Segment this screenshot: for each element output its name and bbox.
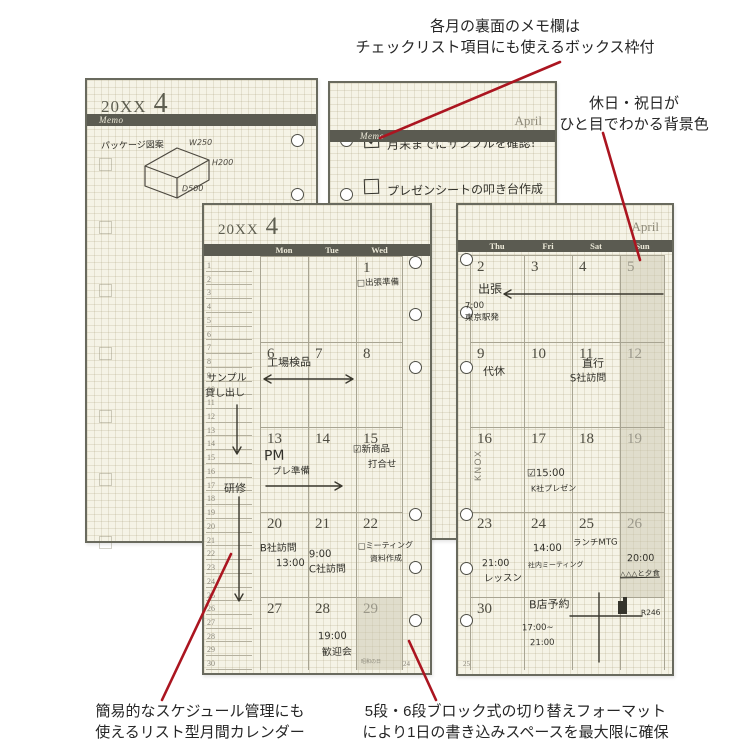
calendar-cell: 1 <box>356 256 403 342</box>
annotation-memo-feature: 各月の裏面のメモ欄は チェックリスト項目にも使えるボックス枠付 <box>305 16 705 58</box>
binder-hole <box>409 256 422 269</box>
checklist-text: プレゼンシートの叩き台作成 <box>387 180 543 199</box>
calendar-cell: 16 <box>470 427 524 512</box>
day-label: Thu <box>470 240 524 252</box>
note-b-from: 17:00~ <box>522 624 554 633</box>
month-label: April <box>632 219 659 235</box>
list-number: 23 <box>207 563 215 572</box>
note-daikyu: 代休 <box>483 366 505 377</box>
memo-checkbox-square <box>99 347 112 360</box>
note-welcome: 歓迎会 <box>322 648 352 659</box>
note-sample: サンプル <box>207 374 247 385</box>
list-row: 19 <box>206 505 252 519</box>
list-number: 26 <box>207 604 215 613</box>
annotation-block-feature: 5段・6段ブロック式の切り替えフォーマット により1日の書き込みスペースを最大限… <box>343 701 688 743</box>
list-number: 27 <box>207 618 215 627</box>
calendar-cell: 14 <box>308 427 356 512</box>
list-number: 16 <box>207 467 215 476</box>
list-row: 21 <box>206 533 252 547</box>
note-b-reserve: B店予約 <box>529 599 570 611</box>
memo-section-label: Memo <box>99 115 124 125</box>
list-row: 24 <box>206 574 252 588</box>
note-c-time: 9:00 <box>309 550 332 560</box>
binder-hole <box>291 188 304 201</box>
calendar-cell: 27 <box>260 597 308 670</box>
list-row: 26 <box>206 601 252 615</box>
list-row: 8 <box>206 354 252 368</box>
list-number: 28 <box>207 632 215 641</box>
list-number: 7 <box>207 343 211 352</box>
page-number: 24 <box>403 661 410 668</box>
binder-hole <box>460 562 473 575</box>
list-row: 20 <box>206 519 252 533</box>
note-meeting: 社内ミーティング <box>528 561 584 569</box>
calendar-cell: 2 <box>470 255 524 342</box>
list-row: 25 <box>206 588 252 602</box>
list-number: 30 <box>207 659 215 668</box>
dim-width: W250 <box>189 139 212 147</box>
date-number: 14 <box>315 431 330 448</box>
dim-depth: D500 <box>182 185 204 193</box>
date-number: 2 <box>477 259 485 276</box>
calendar-cell: 25 <box>572 512 620 597</box>
calendar-cell: 9 <box>470 342 524 427</box>
calendar-page-right: April KNOX 23459101112161718192324252630… <box>456 203 674 676</box>
date-number: 1 <box>363 260 371 277</box>
memo-checkbox-square <box>99 284 112 297</box>
list-number: 5 <box>207 316 211 325</box>
note-chokko: 直行 <box>582 358 604 369</box>
date-number: 4 <box>579 259 587 276</box>
note-b-visit: B社訪問 <box>260 544 297 555</box>
list-row: 29 <box>206 642 252 656</box>
calendar-cell: 19 <box>620 427 665 512</box>
binder-hole <box>409 508 422 521</box>
calendar-cell: 7 <box>308 342 356 427</box>
list-row: 28 <box>206 629 252 643</box>
calendar-cell: 24 <box>524 512 572 597</box>
memo-checkbox-square <box>99 536 112 549</box>
day-label: Sat <box>572 240 620 252</box>
date-number: 20 <box>267 516 282 533</box>
date-number: 28 <box>315 601 330 618</box>
planner-product-image: 20XX4 Memo パッケージ図案W250H200D500 April Mem… <box>0 0 750 750</box>
note-training: 研修 <box>224 483 246 494</box>
list-row: 13 <box>206 423 252 437</box>
day-label: Wed <box>356 244 403 256</box>
date-number: 25 <box>579 516 594 533</box>
note-c-visit: C社訪問 <box>309 565 346 576</box>
note-lunch-mtg: ランチMTG <box>573 539 618 548</box>
note-dinner: △△△と夕食 <box>620 570 660 578</box>
date-number: 18 <box>579 431 594 448</box>
date-number: 10 <box>531 346 546 363</box>
date-number: 17 <box>531 431 546 448</box>
calendar-cell <box>260 256 308 342</box>
annotation-holiday-feature: 休日・祝日が ひと目でわかる背景色 <box>548 93 720 135</box>
list-row: 16 <box>206 464 252 478</box>
list-row: 22 <box>206 546 252 560</box>
binder-hole <box>460 508 473 521</box>
day-label: Sun <box>620 240 665 252</box>
list-row: 6 <box>206 327 252 341</box>
note-meeting: 資料作成 <box>370 555 402 564</box>
date-number: 30 <box>477 601 492 618</box>
date-number: 9 <box>477 346 485 363</box>
calendar-page-left: 20XX4 1678131415202122272829MonTueWed123… <box>202 203 432 675</box>
note-b-to: 21:00 <box>530 639 555 648</box>
binder-hole <box>409 308 422 321</box>
binder-hole <box>340 188 353 201</box>
date-number: 27 <box>267 601 282 618</box>
list-number: 15 <box>207 453 215 462</box>
date-number: 23 <box>477 516 492 533</box>
list-number: 21 <box>207 536 215 545</box>
list-row: 14 <box>206 436 252 450</box>
note-meeting: □ミーティング <box>358 541 413 550</box>
page-title: 20XX4 <box>218 213 278 241</box>
calendar-cell: 8 <box>356 342 403 427</box>
day-label: Tue <box>308 244 356 256</box>
calendar-cell: 30 <box>470 597 524 670</box>
memo-section-label: Memo <box>360 131 385 141</box>
list-number: 22 <box>207 549 215 558</box>
calendar-cell: 12 <box>620 342 665 427</box>
date-number: 8 <box>363 346 371 363</box>
note-dep-station: 東京駅発 <box>465 314 499 323</box>
note-k-presentation: K社プレゼン <box>531 485 576 494</box>
date-number: 29 <box>363 601 378 618</box>
list-row: 23 <box>206 560 252 574</box>
list-number: 12 <box>207 412 215 421</box>
memo-checkbox-square <box>99 410 112 423</box>
list-number: 17 <box>207 481 215 490</box>
dim-height: H200 <box>212 159 233 167</box>
note-prep: プレ準備 <box>272 467 310 477</box>
binder-hole <box>409 561 422 574</box>
checkbox-empty-icon <box>364 179 380 195</box>
note-b-time: 13:00 <box>276 559 305 570</box>
date-number: 5 <box>627 259 635 276</box>
note-sample: 貸し出し <box>205 389 245 400</box>
note-dinner-time: 20:00 <box>627 554 655 564</box>
memo-checkbox-square <box>99 158 112 171</box>
note-s-visit: S社訪問 <box>570 374 607 385</box>
annotation-list-feature: 簡易的なスケジュール管理にも 使えるリスト型月間カレンダー <box>60 701 340 743</box>
calendar-cell <box>572 597 620 670</box>
binder-hole <box>460 253 473 266</box>
calendar-cell: 18 <box>572 427 620 512</box>
note-dep-time: 7:00 <box>465 302 484 311</box>
note-pm: PM <box>264 449 285 463</box>
list-row: 12 <box>206 409 252 423</box>
note-welcome-time: 19:00 <box>318 632 347 643</box>
note-trip: 出張 <box>478 283 502 296</box>
year-label: 20XX <box>218 222 259 238</box>
note-route-label: R246 <box>641 609 661 617</box>
memo-section-bar: Memo <box>87 114 316 126</box>
date-number: 19 <box>627 431 642 448</box>
memo-section-bar: Memo <box>330 130 555 142</box>
binder-hole <box>409 361 422 374</box>
calendar-cell: 23 <box>470 512 524 597</box>
date-number: 12 <box>627 346 642 363</box>
note-inspection: 工場検品 <box>267 357 311 369</box>
date-number: 16 <box>477 431 492 448</box>
list-number: 19 <box>207 508 215 517</box>
date-number: 3 <box>531 259 539 276</box>
calendar-cell <box>308 256 356 342</box>
list-number: 29 <box>207 645 215 654</box>
date-number: 26 <box>627 516 642 533</box>
binder-hole <box>460 614 473 627</box>
binder-hole <box>409 614 422 627</box>
list-number: 6 <box>207 330 211 339</box>
calendar-cell: 3 <box>524 255 572 342</box>
calendar-cell: 11 <box>572 342 620 427</box>
list-number: 11 <box>207 398 215 407</box>
list-row: 30 <box>206 656 252 670</box>
note-newprod: ☑新商品 <box>353 445 390 455</box>
list-number: 13 <box>207 426 215 435</box>
calendar-cell: 5 <box>620 255 665 342</box>
list-number: 24 <box>207 577 215 586</box>
date-number: 21 <box>315 516 330 533</box>
day-label: Fri <box>524 240 572 252</box>
list-row: 2 <box>206 272 252 286</box>
list-number: 18 <box>207 494 215 503</box>
month-label: April <box>515 113 542 129</box>
list-row: 3 <box>206 285 252 299</box>
note-lesson-time: 21:00 <box>482 559 510 569</box>
note-lesson: レッスン <box>484 574 522 584</box>
list-row: 5 <box>206 313 252 327</box>
list-row: 1 <box>206 258 252 272</box>
date-list: 1234567891011121314151617181920212223242… <box>206 258 256 670</box>
sketch-caption: パッケージ図案 <box>101 141 164 151</box>
list-row: 27 <box>206 615 252 629</box>
date-number: 22 <box>363 516 378 533</box>
month-number: 4 <box>266 213 279 240</box>
list-number: 3 <box>207 288 211 297</box>
note-trip-prep: □出張準備 <box>357 279 399 288</box>
list-row: 7 <box>206 340 252 354</box>
calendar-cell: 10 <box>524 342 572 427</box>
note-k-time: ☑15:00 <box>527 469 565 480</box>
note-newprod: 打合せ <box>368 460 397 470</box>
list-number: 14 <box>207 439 215 448</box>
list-number: 20 <box>207 522 215 531</box>
note-meeting-time: 14:00 <box>533 544 562 555</box>
day-label: Mon <box>260 244 308 256</box>
page-number: 25 <box>463 661 470 668</box>
date-number: 7 <box>315 346 323 363</box>
calendar-cell: 20 <box>260 512 308 597</box>
date-number: 13 <box>267 431 282 448</box>
list-number: 2 <box>207 275 211 284</box>
calendar-cell: 4 <box>572 255 620 342</box>
list-row: 15 <box>206 450 252 464</box>
binder-hole <box>291 134 304 147</box>
list-number: 25 <box>207 591 215 600</box>
list-number: 1 <box>207 261 211 270</box>
list-row: 4 <box>206 299 252 313</box>
memo-checkbox-square <box>99 221 112 234</box>
holiday-name: 昭和の日 <box>361 660 381 665</box>
date-number: 24 <box>531 516 546 533</box>
list-number: 4 <box>207 302 211 311</box>
binder-hole <box>460 361 473 374</box>
list-number: 8 <box>207 357 211 366</box>
memo-checkbox-square <box>99 473 112 486</box>
